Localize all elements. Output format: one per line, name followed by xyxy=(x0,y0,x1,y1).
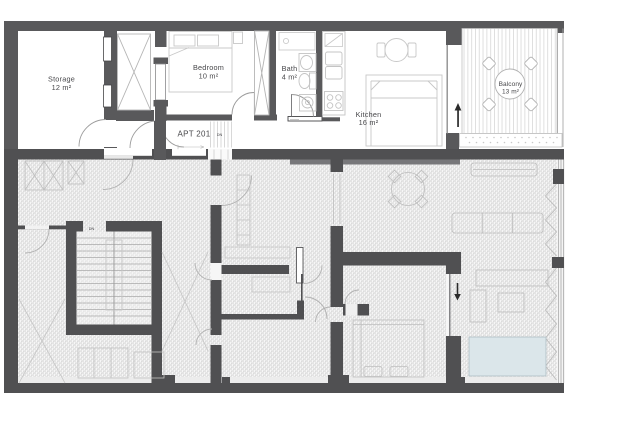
svg-text:16 m²: 16 m² xyxy=(359,118,379,127)
svg-text:Balcony: Balcony xyxy=(499,81,523,88)
svg-text:4 m²: 4 m² xyxy=(282,73,298,82)
svg-text:10 m²: 10 m² xyxy=(199,72,219,81)
svg-text:APT 201: APT 201 xyxy=(177,130,210,139)
svg-text:12 m²: 12 m² xyxy=(52,83,72,92)
svg-text:13 m²: 13 m² xyxy=(502,89,520,96)
svg-text:DN: DN xyxy=(217,133,223,137)
svg-text:DN: DN xyxy=(89,227,95,231)
